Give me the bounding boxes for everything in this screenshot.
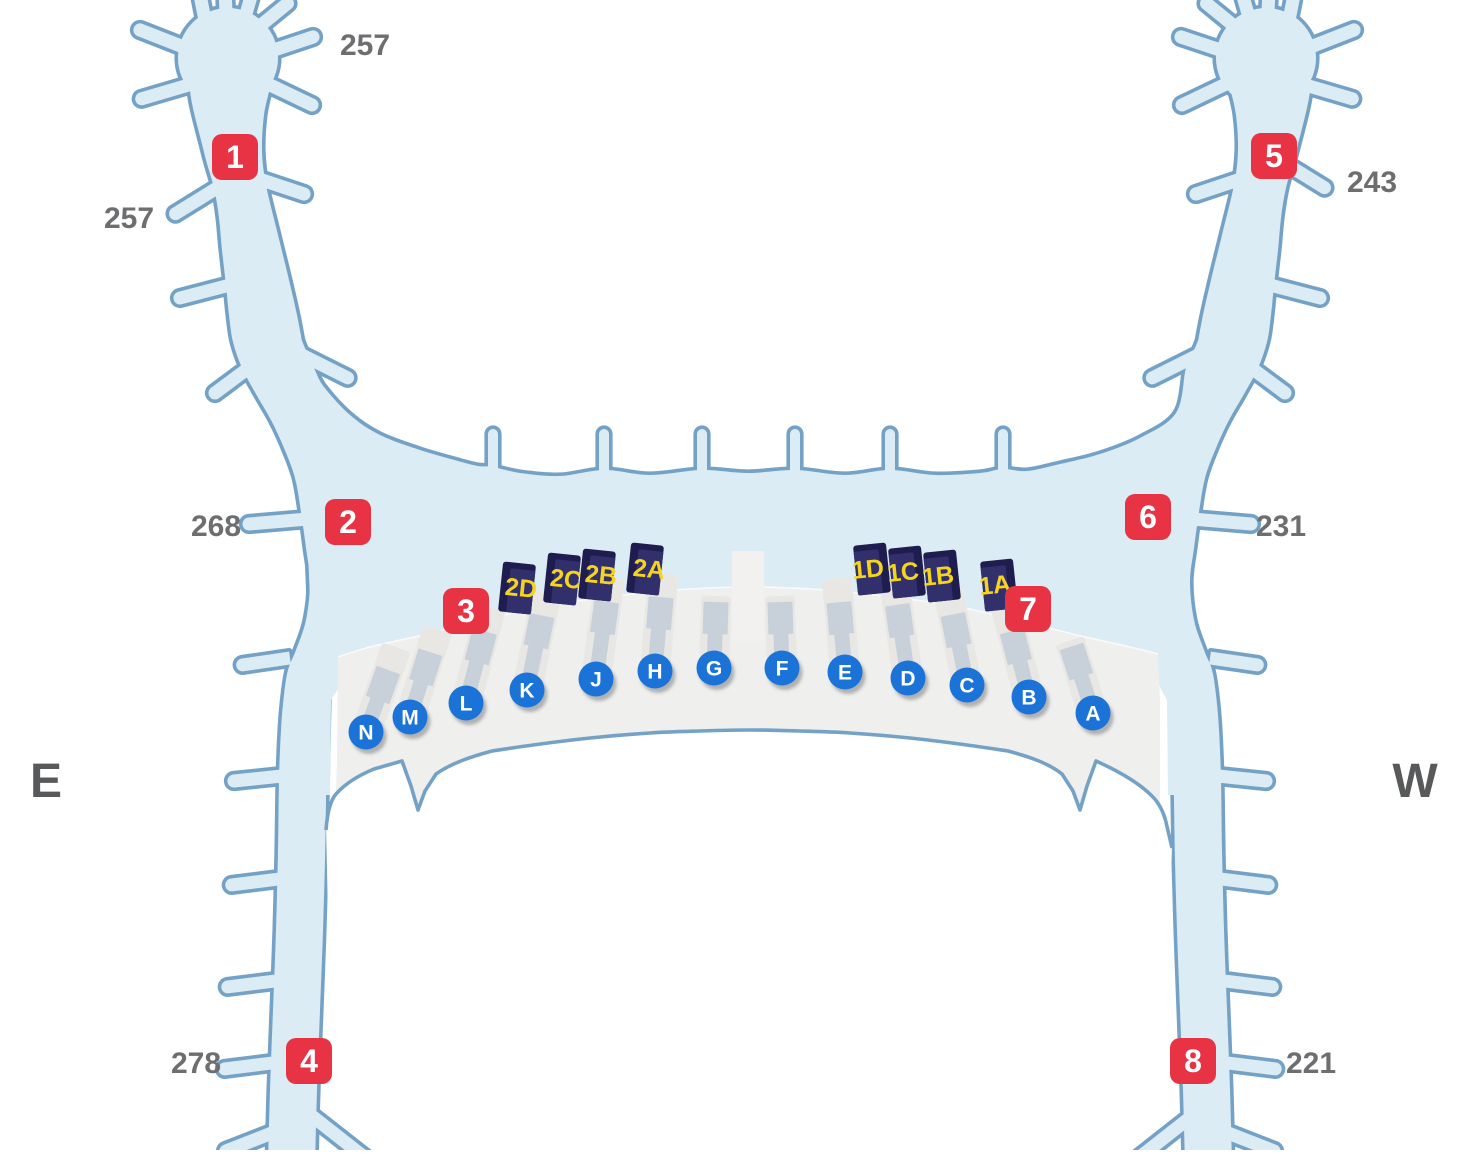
- svg-text:H: H: [647, 661, 662, 684]
- svg-text:1C: 1C: [886, 557, 921, 588]
- svg-text:231: 231: [1256, 510, 1306, 543]
- svg-text:M: M: [401, 707, 419, 730]
- svg-text:257: 257: [340, 29, 390, 62]
- svg-text:D: D: [900, 668, 915, 691]
- svg-text:2C: 2C: [549, 564, 584, 595]
- svg-text:268: 268: [191, 510, 241, 543]
- svg-text:257: 257: [104, 202, 154, 235]
- svg-text:K: K: [519, 680, 534, 703]
- svg-text:1D: 1D: [851, 554, 886, 585]
- svg-text:J: J: [590, 669, 602, 692]
- svg-text:W: W: [1392, 755, 1438, 808]
- svg-text:A: A: [1085, 703, 1100, 726]
- svg-text:8: 8: [1184, 1043, 1202, 1079]
- svg-text:2D: 2D: [504, 573, 539, 604]
- svg-text:B: B: [1021, 687, 1036, 710]
- svg-text:278: 278: [171, 1047, 221, 1080]
- svg-text:G: G: [706, 658, 722, 681]
- svg-text:C: C: [959, 675, 974, 698]
- svg-text:7: 7: [1019, 591, 1037, 627]
- svg-text:2B: 2B: [584, 560, 619, 591]
- svg-text:1B: 1B: [921, 561, 956, 592]
- svg-text:1: 1: [226, 139, 244, 175]
- svg-text:3: 3: [457, 593, 475, 629]
- svg-text:F: F: [776, 658, 789, 681]
- svg-text:4: 4: [300, 1043, 318, 1079]
- svg-text:6: 6: [1139, 499, 1157, 535]
- svg-text:5: 5: [1265, 138, 1283, 174]
- svg-text:243: 243: [1347, 166, 1397, 199]
- svg-text:2: 2: [339, 504, 357, 540]
- svg-text:L: L: [460, 693, 473, 716]
- svg-text:E: E: [30, 755, 62, 808]
- svg-text:2A: 2A: [632, 554, 667, 585]
- svg-text:221: 221: [1286, 1047, 1336, 1080]
- svg-text:E: E: [838, 662, 852, 685]
- svg-text:N: N: [358, 722, 373, 745]
